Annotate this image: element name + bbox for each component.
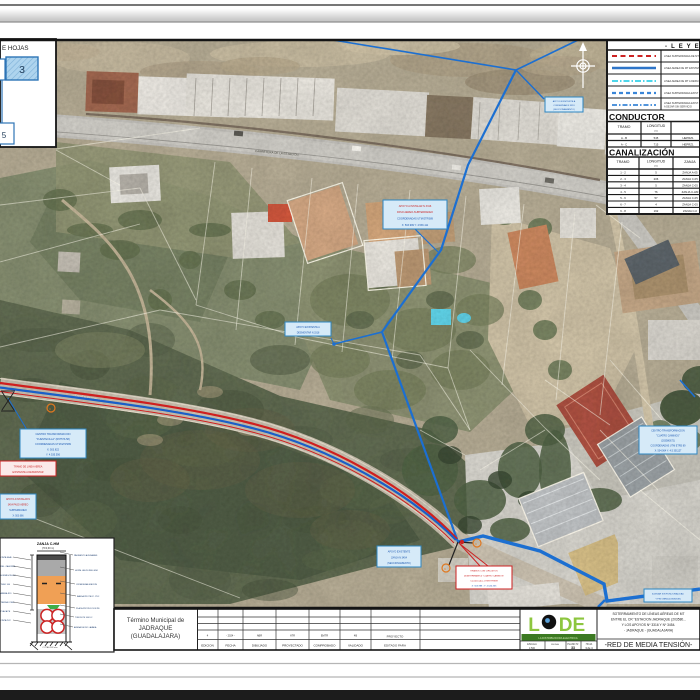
- svg-text:X: 503.822: X: 503.822: [47, 448, 60, 451]
- svg-text:X: 503.666: X: 503.666: [12, 515, 24, 517]
- svg-text:162: 162: [654, 209, 659, 213]
- svg-text:HORM. HM-20 RELLENO: HORM. HM-20 RELLENO: [75, 570, 99, 572]
- svg-text:LINEA SUBTERRANEA EXIST: LINEA SUBTERRANEA EXIST: [664, 92, 699, 95]
- svg-text:COTAS EN mm: COTAS EN mm: [42, 646, 57, 649]
- svg-text:3: 3: [19, 64, 25, 76]
- svg-text:HEPRZ1: HEPRZ1: [682, 136, 693, 140]
- svg-text:APOYO EXISTENTE: APOYO EXISTENTE: [388, 550, 411, 553]
- svg-text:-RED DE MEDIA TENSIÓN-: -RED DE MEDIA TENSIÓN-: [605, 640, 693, 649]
- svg-text:ZANJA: ZANJA: [684, 160, 696, 164]
- svg-text:TUBOS PE 160 DC: TUBOS PE 160 DC: [75, 617, 93, 619]
- svg-text:ESCALA: ESCALA: [527, 643, 537, 646]
- svg-text:4 - 5: 4 - 5: [620, 190, 626, 194]
- svg-text:TUBO 160: TUBO 160: [1, 584, 11, 586]
- svg-text:- 2024 -: - 2024 -: [226, 634, 235, 638]
- svg-text:- JADRAQUE - (GUADALAJARA): - JADRAQUE - (GUADALAJARA): [624, 629, 673, 633]
- svg-text:EDICION: EDICION: [201, 644, 214, 648]
- svg-text:CENTRO TRANSFORMACION: CENTRO TRANSFORMACION: [36, 433, 71, 436]
- svg-text:(H=0,90 m): (H=0,90 m): [42, 547, 54, 550]
- svg-text:ARENA DE RIO LAVADA: ARENA DE RIO LAVADA: [74, 626, 97, 629]
- svg-text:COORDENADAS UTM ETRS 89: COORDENADAS UTM ETRS 89: [651, 445, 687, 448]
- svg-text:VALIDADO: VALIDADO: [348, 644, 364, 648]
- svg-text:5 - 6: 5 - 6: [620, 196, 626, 200]
- svg-text:(m): (m): [654, 131, 658, 133]
- svg-text:CANALIZACIÓN: CANALIZACIÓN: [609, 147, 674, 158]
- svg-text:COORDENADAS UTM ETRS89: COORDENADAS UTM ETRS89: [397, 218, 433, 221]
- svg-text:ZANJA C-HM: ZANJA C-HM: [682, 190, 699, 194]
- svg-text:FECHA: FECHA: [225, 644, 235, 648]
- svg-text:ENTRE EL CR "ESTACION JADRAQUE: ENTRE EL CR "ESTACION JADRAQUE (203580..…: [611, 618, 686, 622]
- svg-text:COMPROBADO: COMPROBADO: [313, 644, 336, 648]
- svg-text:X: 503.999 Y: 4.536.111: X: 503.999 Y: 4.536.111: [402, 224, 429, 227]
- svg-text:REL. ZAHORRA: REL. ZAHORRA: [1, 565, 16, 568]
- svg-text:HEPRZ1: HEPRZ1: [682, 143, 693, 147]
- svg-text:ZANJA C-05: ZANJA C-05: [682, 203, 698, 207]
- svg-text:5: 5: [2, 131, 7, 140]
- svg-text:"CUATRO CAMINOS": "CUATRO CAMINOS": [656, 435, 680, 438]
- svg-text:A DEJAR SIN SERVICIO: A DEJAR SIN SERVICIO: [664, 106, 692, 109]
- svg-text:ZANJA A-05: ZANJA A-05: [682, 171, 698, 175]
- svg-text:L: L: [528, 615, 540, 636]
- svg-text:4B: 4B: [354, 634, 357, 638]
- svg-text:LINEA AEREA DE MT EXISTENT: LINEA AEREA DE MT EXISTENT: [664, 67, 700, 70]
- svg-text:TRAMO: TRAMO: [617, 160, 630, 164]
- svg-text:CINTA SENALIZACION: CINTA SENALIZACION: [76, 583, 98, 586]
- svg-text:EDITADO PARA: EDITADO PARA: [384, 644, 406, 648]
- svg-text:ZANJA C-05: ZANJA C-05: [682, 183, 698, 187]
- svg-text:(GUADALAJARA): (GUADALAJARA): [131, 633, 181, 640]
- svg-text:CONDUCTOR: CONDUCTOR: [609, 112, 665, 122]
- svg-text:LONGITUD: LONGITUD: [647, 124, 666, 128]
- svg-text:COORDENADAS UTM ETRS89: COORDENADAS UTM ETRS89: [35, 443, 71, 446]
- svg-text:HOJA: HOJA: [586, 643, 593, 646]
- svg-text:TRAMO: TRAMO: [618, 125, 631, 129]
- svg-text:"FUENTECILLA" (R67573-58): "FUENTECILLA" (R67573-58): [36, 438, 70, 441]
- svg-text:LA DISTRIBUIDORA ELECTRICA: LA DISTRIBUIDORA ELECTRICA: [538, 636, 577, 640]
- svg-text:APOYO EXISTENTE A: APOYO EXISTENTE A: [553, 100, 576, 103]
- svg-text:76: 76: [654, 190, 658, 194]
- svg-text:EXISTENTE A DESMONTAR: EXISTENTE A DESMONTAR: [12, 471, 43, 474]
- svg-text:ATR: ATR: [290, 634, 295, 638]
- svg-text:PLACA PROTECCION PE: PLACA PROTECCION PE: [76, 607, 100, 610]
- svg-text:CINTA PVC: CINTA PVC: [1, 619, 12, 622]
- svg-text:(SECCIONAMIENTO): (SECCIONAMIENTO): [553, 108, 575, 111]
- svg-text:PASO AEREO-SUBTERRANEO: PASO AEREO-SUBTERRANEO: [397, 211, 433, 214]
- svg-text:APOYO EXISTENTE A: APOYO EXISTENTE A: [296, 326, 320, 329]
- svg-text:ARENA RIO: ARENA RIO: [1, 592, 12, 595]
- svg-text:X: 504.064 Y: 4.5 301127: X: 504.064 Y: 4.5 301127: [655, 450, 682, 453]
- svg-text:(SECCIONAMIENTO): (SECCIONAMIENTO): [387, 562, 411, 565]
- svg-text:2 - 3: 2 - 3: [620, 177, 626, 181]
- svg-text:PAVIMENTO ACERA/ASF.: PAVIMENTO ACERA/ASF.: [74, 554, 98, 557]
- svg-text:Y FIN OBRA (203580638): Y FIN OBRA (203580638): [655, 598, 681, 601]
- svg-text:Y: 4.535.556: Y: 4.535.556: [46, 453, 61, 456]
- svg-text:ZANJA C-0: ZANJA C-0: [683, 209, 697, 213]
- svg-text:LINEA AEREA DE MT A DESM: LINEA AEREA DE MT A DESM: [664, 80, 698, 83]
- svg-text:DIBUJADO: DIBUJADO: [252, 644, 268, 648]
- svg-text:ZANJA N 3454: ZANJA N 3454: [391, 556, 407, 559]
- svg-text:APOYO A INSTALAR N 3316: APOYO A INSTALAR N 3316: [399, 205, 432, 208]
- svg-text:57: 57: [654, 196, 658, 200]
- svg-text:JADRAQUE: JADRAQUE: [139, 625, 173, 632]
- svg-text:206: 206: [654, 177, 659, 181]
- svg-text:FECHA: FECHA: [551, 643, 559, 646]
- svg-text:ABR: ABR: [257, 634, 262, 638]
- svg-text:ZANJA C-05: ZANJA C-05: [682, 196, 698, 200]
- svg-text:SOTERRAMIENTO DE LÍNEAS AÉREAS: SOTERRAMIENTO DE LÍNEAS AÉREAS DE MT: [612, 611, 684, 616]
- svg-text:CONSERVAR N 3319: CONSERVAR N 3319: [553, 104, 575, 107]
- svg-text:PROYECTO: PROYECTO: [387, 635, 404, 639]
- svg-text:A - B: A - B: [621, 136, 627, 140]
- svg-text:(SUBTERRANEO) "CUATRO CAMINOS": (SUBTERRANEO) "CUATRO CAMINOS": [464, 575, 504, 578]
- svg-text:1 - 2: 1 - 2: [620, 171, 626, 175]
- svg-text:- L E Y E N D A -: - L E Y E N D A -: [665, 44, 700, 50]
- svg-text:A DEJAR SIN FUNCIONALIDAD: A DEJAR SIN FUNCIONALIDAD: [652, 593, 684, 596]
- svg-text:DESMONTAR N 3318: DESMONTAR N 3318: [297, 331, 320, 334]
- svg-text:TRAMO DE LINEA AEREA: TRAMO DE LINEA AEREA: [14, 465, 43, 468]
- svg-text:TRAMOS CON CIRCUITOS: TRAMOS CON CIRCUITOS: [470, 570, 498, 573]
- svg-text:LINEA SUBTERRANEA DE MT: LINEA SUBTERRANEA DE MT: [664, 55, 699, 58]
- svg-text:ZANJA C-05: ZANJA C-05: [682, 177, 698, 181]
- svg-text:3454 PASO AEREO: 3454 PASO AEREO: [8, 503, 29, 506]
- svg-text:X: 503.988 ; Y: 4.540.335: X: 503.988 ; Y: 4.540.335: [472, 586, 497, 588]
- svg-text:CENTRO TRANSFORMACION: CENTRO TRANSFORMACION: [651, 430, 685, 433]
- svg-text:715: 715: [654, 143, 659, 147]
- svg-text:TIERRA COMP.: TIERRA COMP.: [1, 601, 16, 604]
- svg-text:SUBTERRANEO: SUBTERRANEO: [9, 509, 27, 512]
- svg-text:PLACA PE: PLACA PE: [1, 610, 11, 613]
- svg-text:BANDA PROTECC. PVC: BANDA PROTECC. PVC: [77, 595, 100, 598]
- svg-text:DE: DE: [559, 615, 585, 636]
- svg-text:(203580672): (203580672): [661, 440, 675, 443]
- svg-text:6 - 8: 6 - 8: [620, 209, 626, 213]
- svg-text:6 - 7: 6 - 7: [620, 203, 626, 207]
- svg-text:Coordenadas UTM ETRS89: Coordenadas UTM ETRS89: [470, 580, 498, 583]
- svg-text:(m): (m): [654, 166, 658, 168]
- svg-text:APOYO A INSTALAR N: APOYO A INSTALAR N: [6, 498, 30, 501]
- svg-text:LONGITUD: LONGITUD: [647, 160, 666, 164]
- svg-text:CINTA SEAL.: CINTA SEAL.: [1, 556, 13, 559]
- svg-text:A - C: A - C: [621, 143, 627, 147]
- svg-text:Término Municipal de: Término Municipal de: [127, 618, 185, 624]
- svg-text:EMTR: EMTR: [321, 634, 328, 638]
- svg-text:Y LOS APOYOS Nº 3316 Y Nº 3454: Y LOS APOYOS Nº 3316 Y Nº 3454.: [622, 623, 676, 627]
- svg-text:ZANJA C-HM: ZANJA C-HM: [37, 542, 59, 546]
- svg-text:545: 545: [654, 136, 659, 140]
- svg-text:3 - 4: 3 - 4: [620, 183, 626, 187]
- svg-text:PROYECTADO: PROYECTADO: [282, 644, 303, 648]
- svg-text:E HOJAS: E HOJAS: [2, 45, 28, 52]
